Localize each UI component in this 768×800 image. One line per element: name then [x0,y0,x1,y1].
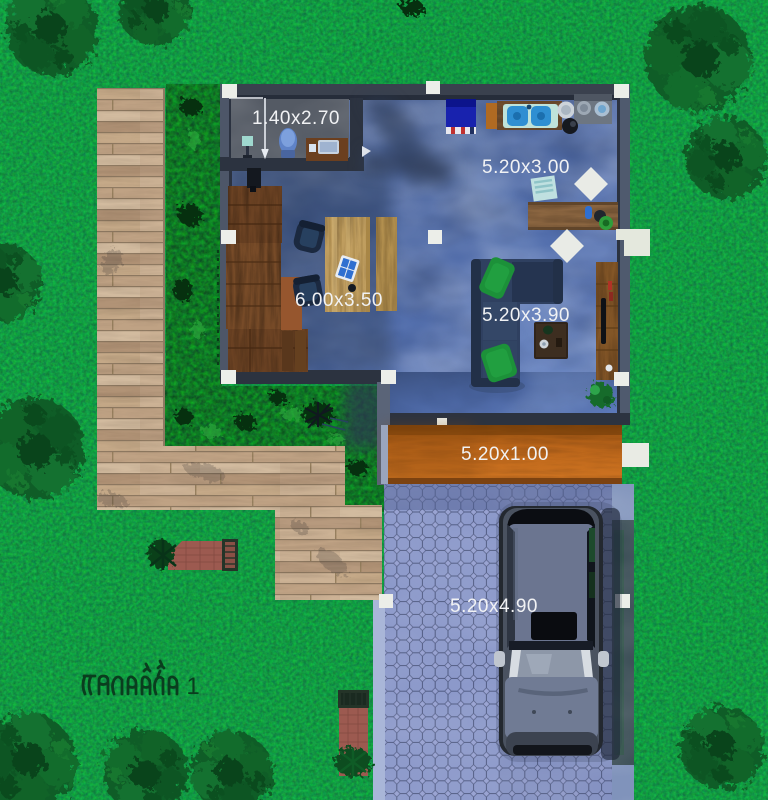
svg-text:1: 1 [186,673,199,700]
svg-text:1.40x2.70: 1.40x2.70 [252,108,340,129]
svg-text:5.20x1.00: 5.20x1.00 [461,444,549,465]
svg-text:6.00x3.50: 6.00x3.50 [295,290,383,311]
svg-text:5.20x3.90: 5.20x3.90 [482,305,570,326]
svg-text:5.20x4.90: 5.20x4.90 [450,596,538,617]
svg-text:5.20x3.00: 5.20x3.00 [482,157,570,178]
